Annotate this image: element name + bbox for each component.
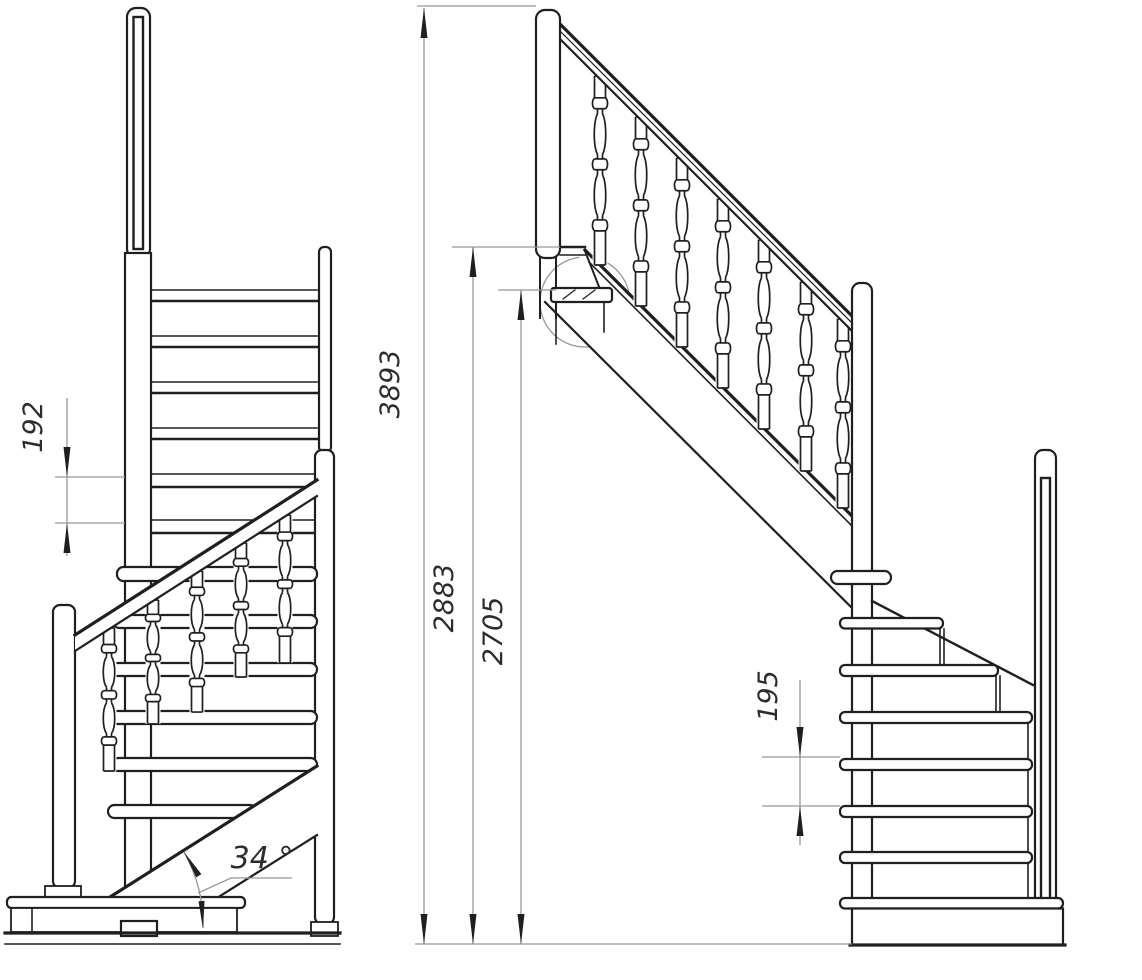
bottom-step-tread [840,898,1063,909]
dimension-label-2883: 2883 [429,564,460,633]
angle-label-34: 34 ° [231,841,294,876]
right-rail-end [319,247,331,452]
lower-newel-post [53,605,75,888]
side-base [840,898,1065,945]
lower-rail-end-post [1035,450,1056,908]
post-collar [831,571,891,584]
top-newel-post [536,10,560,318]
staircase-technical-drawing: 192 34 ° [0,0,1142,980]
winder-tread [551,288,612,302]
base-box [852,909,1063,946]
front-view: 192 34 ° [5,8,340,944]
dimension-riser-195: 195 [753,670,840,845]
dimension-label-3893: 3893 [375,350,406,419]
dimension-label-195: 195 [753,670,784,722]
handrail-end-post-top [127,8,150,258]
dimension-winder-2705: 2705 [478,290,525,944]
dimension-label-2705: 2705 [478,597,509,666]
dimension-landing-2883: 2883 [429,247,477,944]
dimension-label-192: 192 [18,401,49,453]
first-step-tread [7,897,245,908]
dimension-riser-192: 192 [18,398,125,556]
dimension-total-3893: 3893 [375,8,428,944]
blueprint-canvas: 192 34 ° [0,0,1142,980]
right-newel-post [315,450,334,924]
